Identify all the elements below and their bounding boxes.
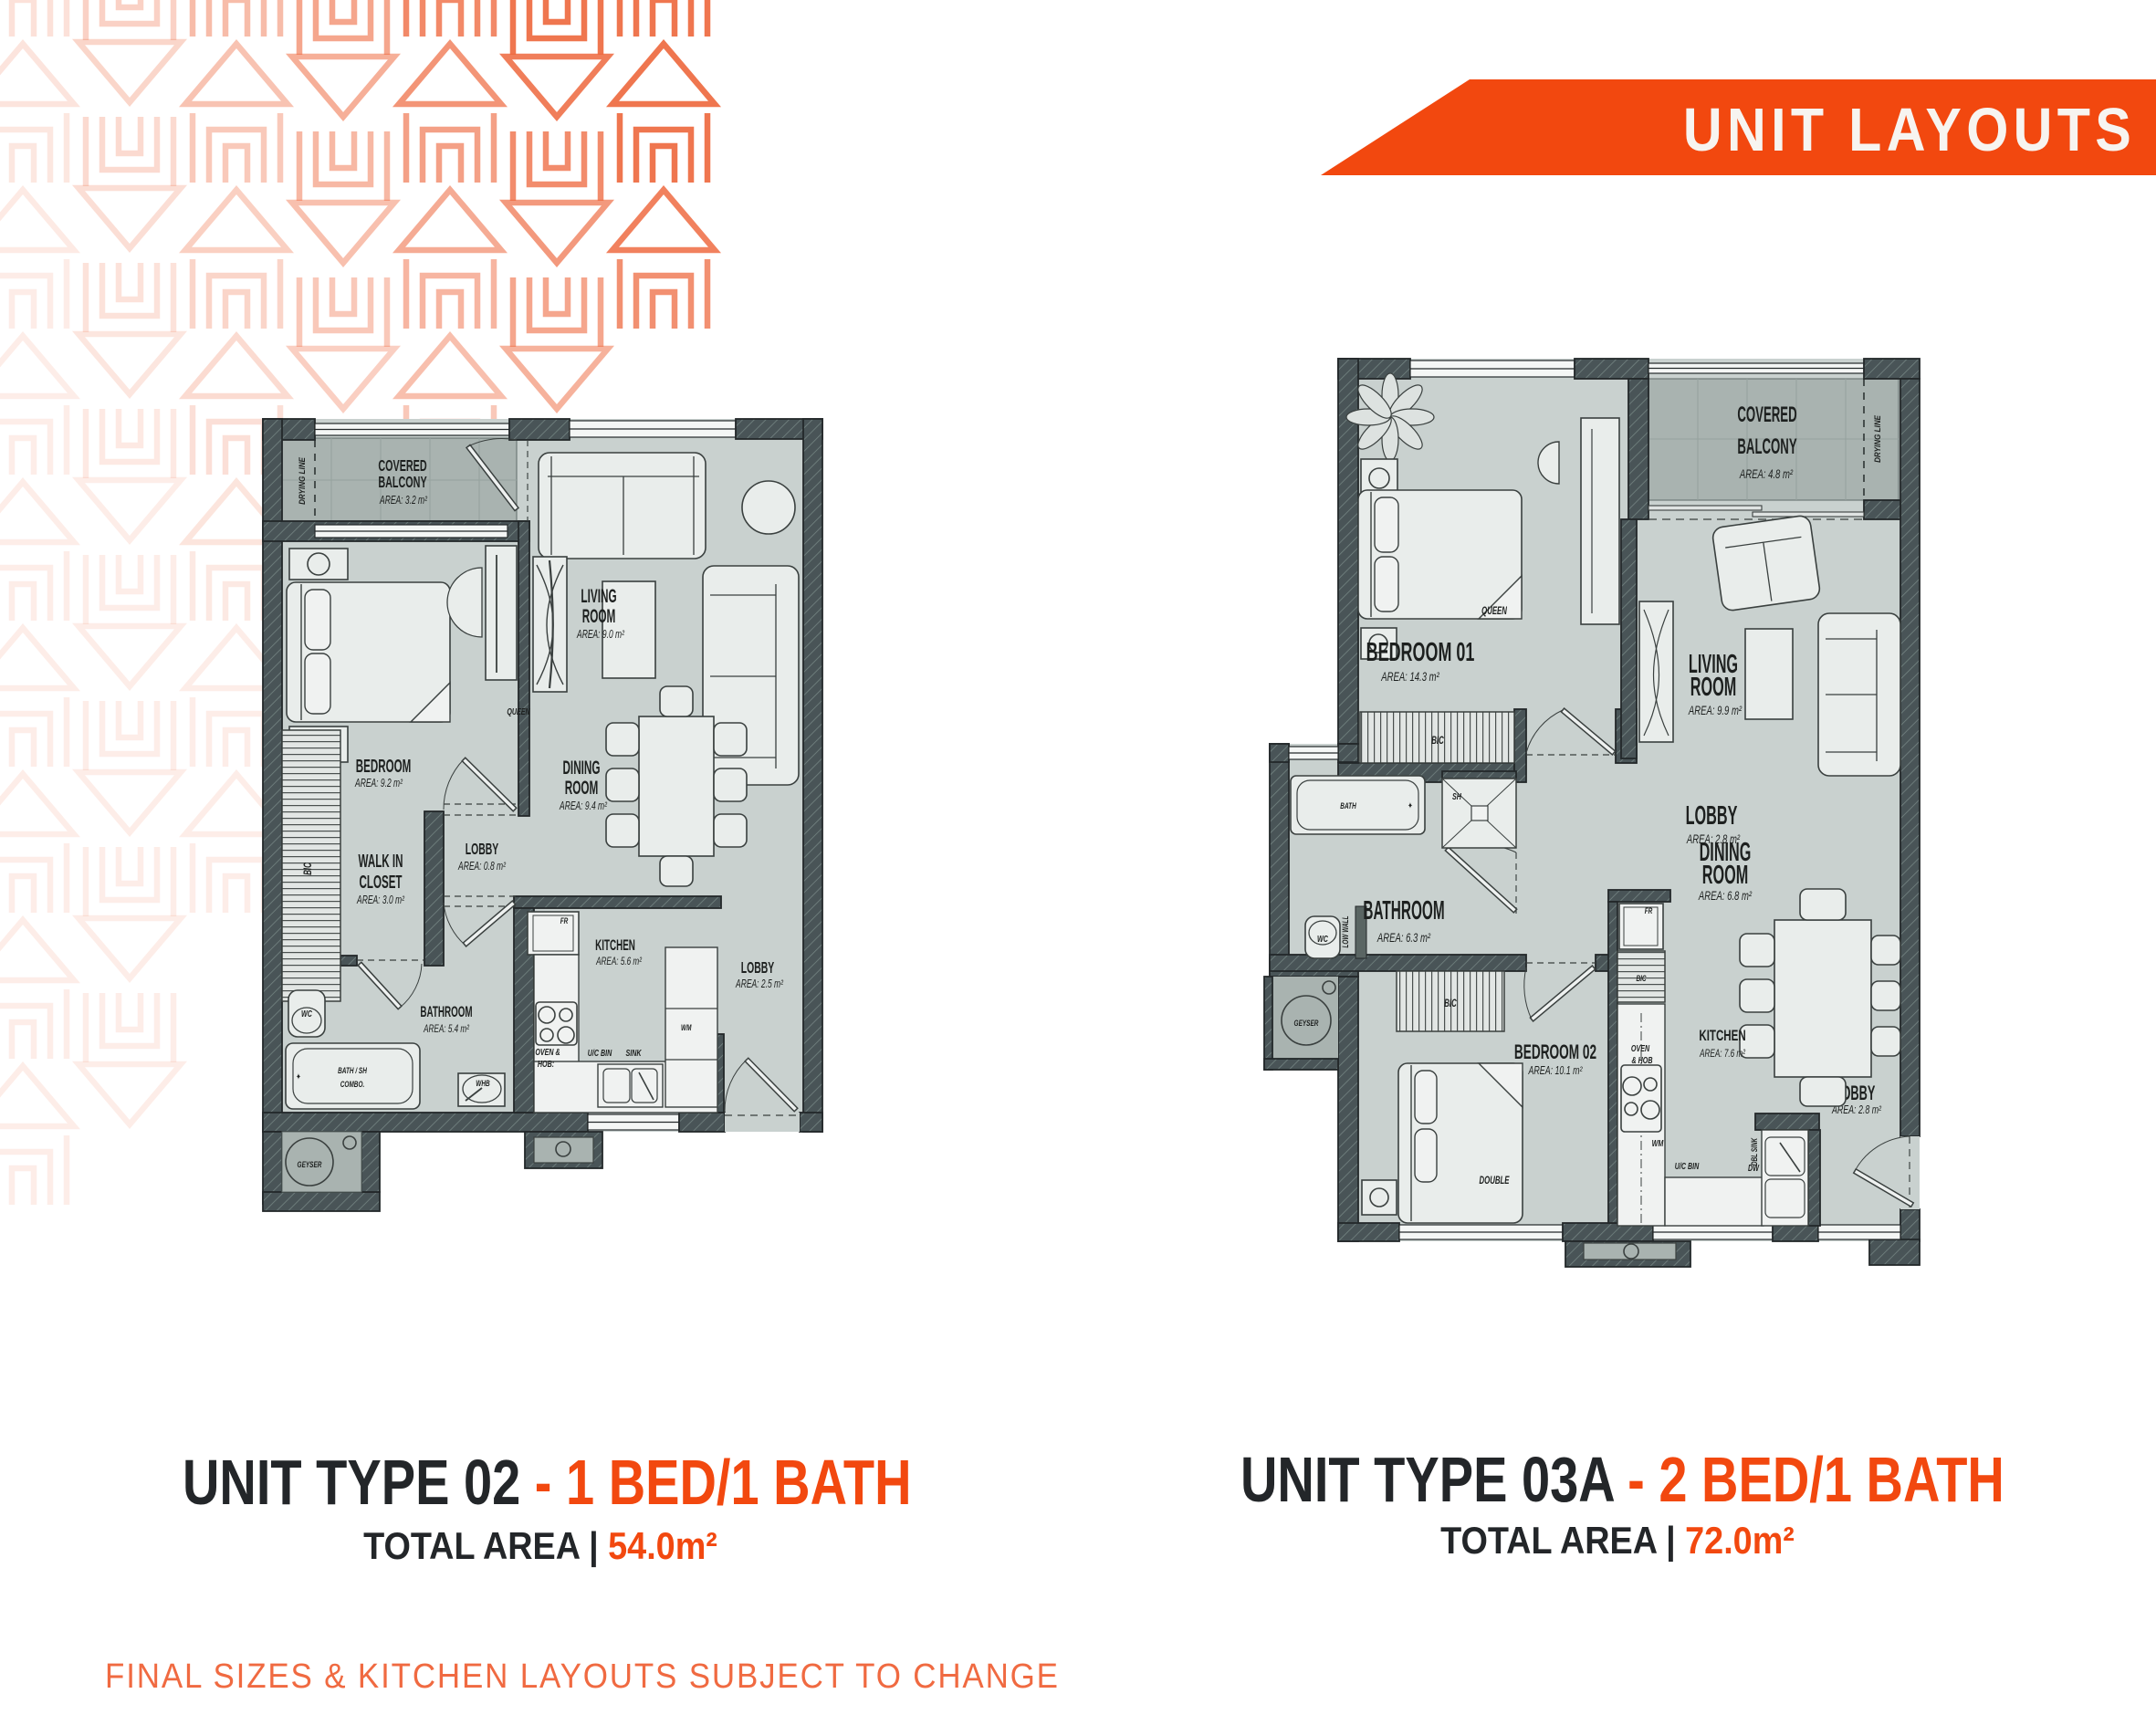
svg-text:WALK IN: WALK IN: [359, 852, 403, 872]
svg-text:BIC: BIC: [1636, 974, 1646, 984]
svg-text:DINING: DINING: [562, 757, 600, 778]
svg-text:✦: ✦: [1408, 800, 1413, 811]
svg-text:AREA: 9.2 m²: AREA: 9.2 m²: [354, 777, 403, 789]
svg-text:SINK: SINK: [625, 1048, 642, 1059]
svg-text:UNIT TYPE 03A - 2 BED/1 BATH: UNIT TYPE 03A - 2 BED/1 BATH: [1240, 1445, 2004, 1515]
svg-text:AREA: 0.8 m²: AREA: 0.8 m²: [457, 860, 506, 873]
svg-text:WM: WM: [681, 1023, 692, 1033]
svg-text:UNIT LAYOUTS: UNIT LAYOUTS: [1683, 97, 2136, 164]
svg-text:LOBBY: LOBBY: [466, 841, 499, 859]
svg-text:QUEEN: QUEEN: [507, 706, 530, 717]
svg-text:AREA: 2.5 m²: AREA: 2.5 m²: [735, 977, 783, 990]
svg-text:FR: FR: [560, 916, 569, 926]
svg-text:LOBBY: LOBBY: [741, 959, 775, 977]
svg-text:WM: WM: [1652, 1138, 1664, 1149]
svg-text:AREA: 10.1 m²: AREA: 10.1 m²: [1528, 1064, 1584, 1077]
svg-text:AREA: 6.8 m²: AREA: 6.8 m²: [1698, 888, 1753, 903]
svg-text:& HOB: & HOB: [1632, 1055, 1653, 1066]
svg-text:TOTAL AREA | 72.0m²: TOTAL AREA | 72.0m²: [1440, 1520, 1795, 1562]
svg-text:ROOM: ROOM: [565, 777, 599, 798]
svg-text:DRYING LINE: DRYING LINE: [297, 456, 307, 505]
svg-text:AREA: 3.0 m²: AREA: 3.0 m²: [356, 894, 404, 906]
svg-text:ROOM: ROOM: [582, 605, 616, 626]
svg-text:LOBBY: LOBBY: [1686, 800, 1738, 830]
svg-text:AREA: 14.3 m²: AREA: 14.3 m²: [1380, 669, 1439, 684]
svg-text:BIC: BIC: [1444, 998, 1457, 1010]
svg-text:WC: WC: [301, 1009, 312, 1019]
svg-text:COMBO.: COMBO.: [340, 1080, 365, 1090]
svg-text:AREA: 9.9 m²: AREA: 9.9 m²: [1688, 703, 1743, 717]
svg-text:ROOM: ROOM: [1690, 672, 1737, 701]
svg-text:AREA: 7.6 m²: AREA: 7.6 m²: [1699, 1049, 1745, 1061]
svg-text:BIC: BIC: [303, 862, 315, 875]
svg-text:DBL SINK: DBL SINK: [1750, 1137, 1760, 1166]
svg-text:UNIT TYPE 02 - 1 BED/1 BATH: UNIT TYPE 02 - 1 BED/1 BATH: [183, 1448, 912, 1518]
svg-text:U/C BIN: U/C BIN: [1675, 1161, 1700, 1172]
svg-text:AREA: 5.6 m²: AREA: 5.6 m²: [595, 957, 642, 968]
svg-text:OVEN &: OVEN &: [535, 1047, 560, 1058]
svg-text:BATH: BATH: [1340, 801, 1356, 811]
svg-text:DOUBLE: DOUBLE: [1479, 1176, 1509, 1187]
svg-text:KITCHEN: KITCHEN: [1699, 1028, 1745, 1045]
svg-text:GEYSER: GEYSER: [298, 1160, 322, 1170]
svg-text:BALCONY: BALCONY: [378, 474, 426, 491]
svg-text:COVERED: COVERED: [378, 457, 427, 475]
svg-text:BALCONY: BALCONY: [1737, 434, 1796, 459]
svg-text:TOTAL AREA | 54.0m²: TOTAL AREA | 54.0m²: [363, 1525, 717, 1567]
svg-text:COVERED: COVERED: [1737, 402, 1796, 427]
svg-text:OVEN: OVEN: [1631, 1043, 1650, 1054]
svg-text:U/C BIN: U/C BIN: [588, 1048, 612, 1059]
svg-text:AREA: 3.2 m²: AREA: 3.2 m²: [379, 494, 427, 507]
svg-text:BATHROOM: BATHROOM: [1363, 895, 1444, 925]
svg-text:✦: ✦: [296, 1072, 301, 1082]
svg-text:HOB:: HOB:: [538, 1059, 554, 1070]
svg-text:ROOM: ROOM: [1702, 860, 1749, 889]
svg-text:BEDROOM: BEDROOM: [356, 757, 412, 777]
svg-text:AREA: 5.4 m²: AREA: 5.4 m²: [423, 1024, 469, 1036]
svg-text:QUEEN: QUEEN: [1481, 606, 1508, 618]
svg-text:FR: FR: [1645, 906, 1653, 916]
svg-text:BATHROOM: BATHROOM: [420, 1002, 472, 1020]
svg-text:FINAL SIZES & KITCHEN LAYOUTS: FINAL SIZES & KITCHEN LAYOUTS SUBJECT TO…: [105, 1657, 1060, 1696]
svg-text:AREA: 9.4 m²: AREA: 9.4 m²: [559, 800, 607, 812]
svg-text:GEYSER: GEYSER: [1294, 1019, 1319, 1029]
svg-text:AREA: 9.0 m²: AREA: 9.0 m²: [576, 628, 624, 641]
svg-text:SH: SH: [1452, 791, 1461, 802]
svg-text:BATH / SH: BATH / SH: [338, 1066, 367, 1076]
svg-text:BIC: BIC: [1431, 736, 1444, 747]
svg-text:LIVING: LIVING: [581, 585, 616, 606]
svg-text:WHB: WHB: [476, 1079, 490, 1089]
svg-text:KITCHEN: KITCHEN: [595, 936, 635, 954]
svg-text:LOW WALL: LOW WALL: [1341, 915, 1351, 947]
svg-text:WC: WC: [1317, 934, 1328, 945]
svg-text:AREA: 6.3 m²: AREA: 6.3 m²: [1376, 930, 1431, 945]
svg-text:BEDROOM 01: BEDROOM 01: [1366, 638, 1475, 667]
svg-text:BEDROOM 02: BEDROOM 02: [1514, 1040, 1596, 1063]
svg-text:CLOSET: CLOSET: [360, 873, 403, 893]
svg-text:AREA: 4.8 m²: AREA: 4.8 m²: [1739, 466, 1794, 481]
svg-text:DRYING LINE: DRYING LINE: [1872, 414, 1882, 463]
